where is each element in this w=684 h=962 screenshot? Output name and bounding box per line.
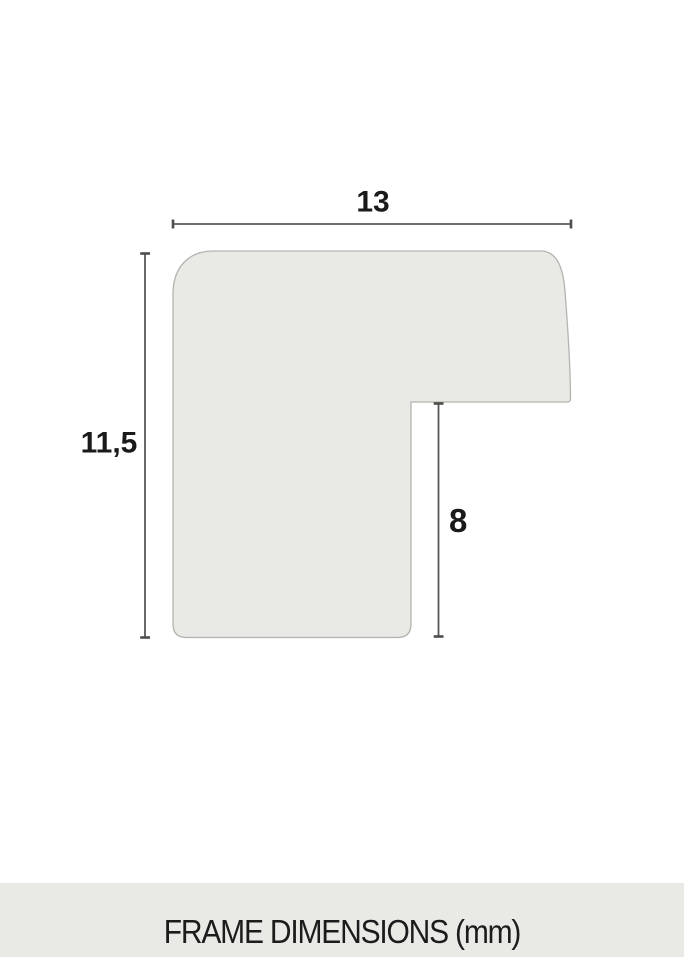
svg-text:8: 8 bbox=[449, 502, 467, 539]
svg-text:13: 13 bbox=[356, 186, 389, 219]
svg-text:11,5: 11,5 bbox=[81, 427, 138, 460]
